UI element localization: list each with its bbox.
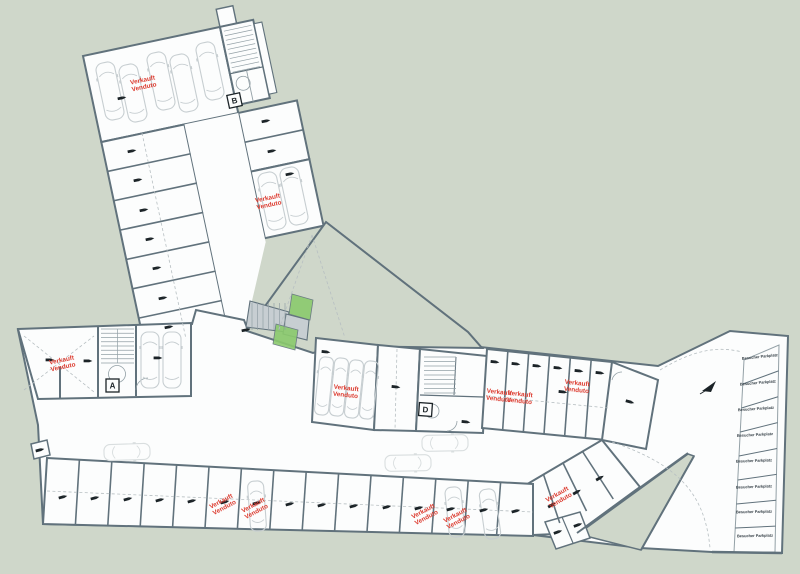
car-mirror (181, 346, 183, 349)
car-mirror (451, 451, 454, 453)
car-mirror (444, 502, 446, 505)
car-mirror (161, 346, 163, 349)
marker-block (553, 366, 559, 369)
stairwell-letter-text: D (422, 405, 429, 414)
car-mirror (347, 373, 349, 376)
stairwell-letter-text: A (110, 381, 116, 390)
marker-block (461, 420, 467, 423)
sold-label: VerkauftVenduto (507, 390, 534, 407)
car-mirror (377, 376, 379, 379)
car-mirror (362, 374, 364, 377)
car-mirror (133, 459, 136, 461)
marker-block (391, 385, 397, 388)
marker-block (154, 357, 159, 360)
visitor-stall-label: Besucher Parkplatz (737, 533, 773, 539)
marker-block (321, 350, 327, 353)
car-mirror (317, 370, 319, 373)
wall-line (712, 552, 782, 553)
car-mirror (462, 500, 464, 503)
sold-label: VerkauftVenduto (333, 384, 360, 401)
marker-block (84, 360, 89, 363)
stairwell-letter: D (419, 403, 433, 417)
car-mirror (414, 471, 417, 473)
car-mirror (159, 346, 161, 349)
visitor-stall-label: Besucher Parkplatz (736, 509, 772, 515)
marker-block (511, 362, 517, 365)
stairwell-letter: B (227, 93, 242, 108)
car-mirror (451, 433, 454, 435)
floor-plan-page: VerkauftVendutoVerkauftVendutoVerkauftVe… (0, 0, 800, 574)
marker-block (574, 369, 580, 372)
car-mirror (264, 494, 266, 497)
car-mirror (247, 496, 249, 499)
car-mirror (133, 442, 136, 444)
sold-label: VerkauftVenduto (564, 379, 591, 396)
stairwell-letter: A (106, 379, 119, 392)
marker-block (595, 371, 601, 374)
marker-block (532, 364, 538, 367)
marker-block (490, 360, 496, 363)
car-mirror (139, 346, 141, 349)
car-mirror (414, 453, 417, 455)
car-mirror (332, 371, 334, 374)
floor-plan-canvas: VerkauftVendutoVerkauftVendutoVerkauftVe… (0, 0, 800, 574)
